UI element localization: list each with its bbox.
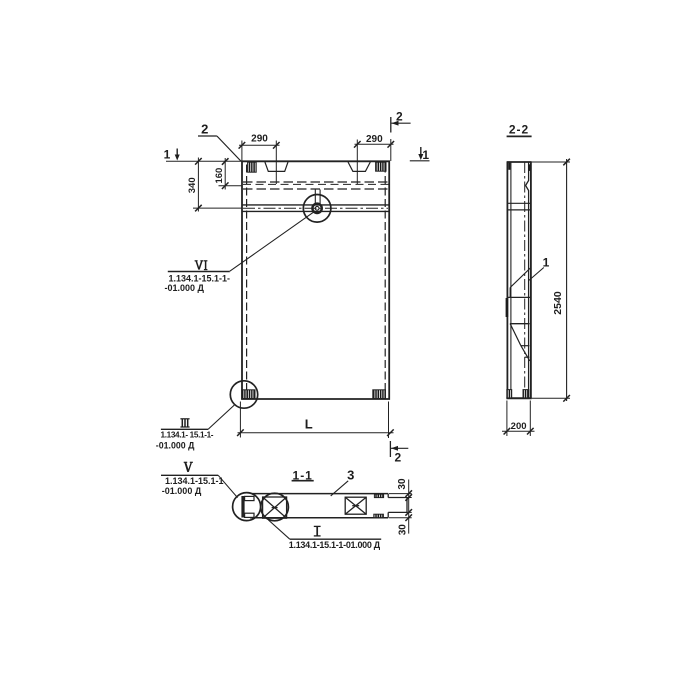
svg-text:200: 200: [511, 421, 527, 432]
svg-text:1: 1: [422, 148, 429, 162]
svg-text:2540: 2540: [552, 291, 564, 315]
svg-text:-01.000 Д: -01.000 Д: [162, 486, 202, 496]
svg-text:1.134.1- 15.1-1-: 1.134.1- 15.1-1-: [161, 431, 214, 440]
svg-text:30: 30: [398, 524, 409, 536]
svg-text:1-1: 1-1: [293, 469, 313, 483]
svg-text:2-2: 2-2: [509, 123, 529, 137]
svg-text:-01.000 Д: -01.000 Д: [156, 440, 195, 450]
svg-text:1.134.1-15.1-1-: 1.134.1-15.1-1-: [169, 274, 231, 284]
svg-text:-01.000 Д: -01.000 Д: [165, 283, 205, 293]
svg-text:30: 30: [397, 478, 408, 490]
svg-text:160: 160: [214, 168, 225, 184]
svg-text:340: 340: [187, 177, 198, 193]
svg-text:1.134.1-15.1-1: 1.134.1-15.1-1: [165, 476, 224, 486]
svg-text:1.134.1-15.1-1-01.000 Д: 1.134.1-15.1-1-01.000 Д: [289, 540, 381, 550]
svg-text:2: 2: [396, 110, 403, 124]
svg-text:1: 1: [164, 148, 171, 162]
svg-text:290: 290: [366, 134, 383, 145]
svg-text:290: 290: [251, 134, 268, 145]
svg-text:2: 2: [201, 122, 208, 137]
svg-text:2: 2: [394, 451, 401, 465]
svg-text:L: L: [305, 417, 313, 432]
svg-text:1: 1: [543, 256, 550, 270]
svg-text:3: 3: [347, 468, 354, 483]
